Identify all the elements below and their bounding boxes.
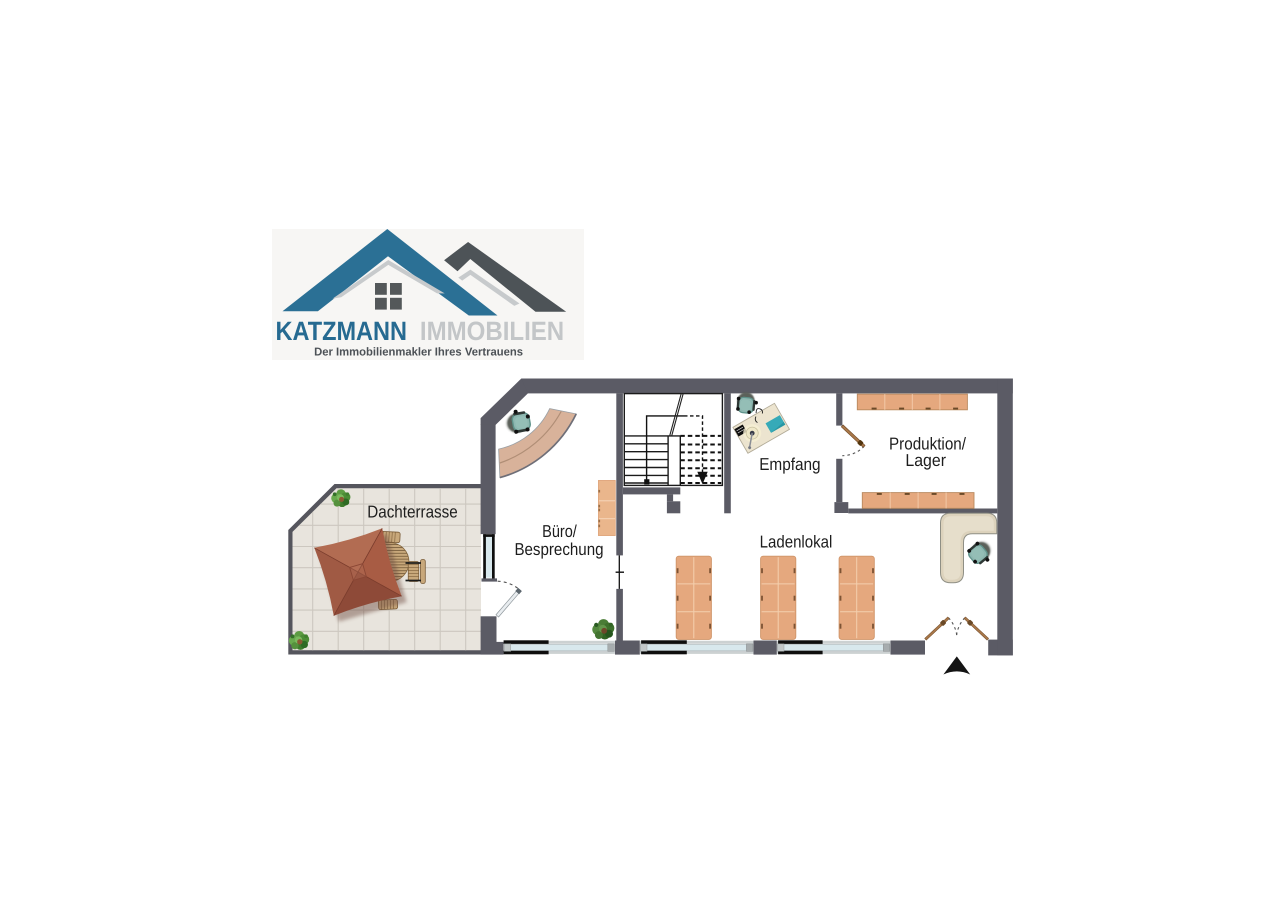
svg-text:Ladenlokal: Ladenlokal — [760, 531, 833, 551]
svg-text:Dachterrasse: Dachterrasse — [367, 502, 458, 522]
svg-text:Empfang: Empfang — [759, 454, 820, 474]
svg-text:Der Immobilienmakler Ihres Ver: Der Immobilienmakler Ihres Vertrauens — [314, 346, 523, 358]
svg-text:KATZMANN: KATZMANN — [276, 316, 408, 346]
svg-text:Lager: Lager — [905, 450, 946, 470]
svg-text:Besprechung: Besprechung — [514, 539, 603, 559]
svg-text:IMMOBILIEN: IMMOBILIEN — [420, 316, 564, 346]
